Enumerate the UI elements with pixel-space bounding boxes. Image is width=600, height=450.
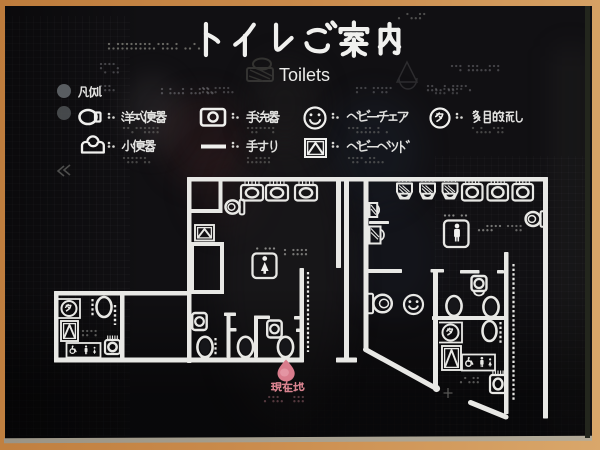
- svg-text:Toilets: Toilets: [279, 65, 330, 85]
